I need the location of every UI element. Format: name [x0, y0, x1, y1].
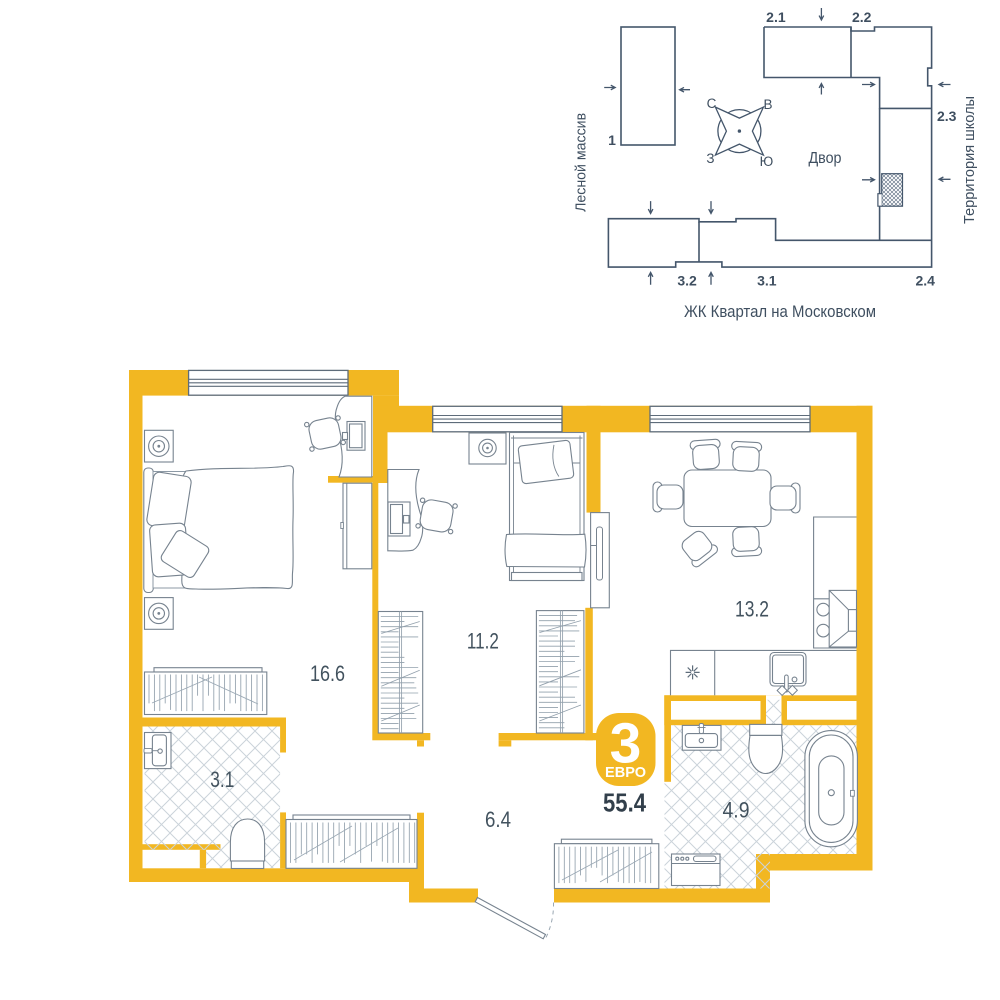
svg-text:1: 1	[608, 132, 616, 148]
svg-text:11.2: 11.2	[467, 628, 499, 653]
svg-text:4.9: 4.9	[723, 798, 750, 823]
svg-text:ЕВРО: ЕВРО	[605, 764, 646, 781]
svg-text:Двор: Двор	[809, 150, 842, 167]
svg-text:ЖК Квартал на Московском: ЖК Квартал на Московском	[684, 303, 876, 321]
svg-text:З: З	[706, 151, 714, 166]
svg-text:С: С	[707, 96, 717, 111]
svg-text:В: В	[763, 97, 772, 112]
svg-text:3.1: 3.1	[210, 767, 234, 792]
svg-text:13.2: 13.2	[735, 596, 769, 621]
svg-text:2.2: 2.2	[852, 9, 872, 25]
svg-text:3.1: 3.1	[757, 273, 777, 289]
svg-text:55.4: 55.4	[603, 788, 646, 818]
svg-text:2.4: 2.4	[915, 273, 935, 289]
svg-text:3.2: 3.2	[677, 273, 697, 289]
svg-text:Территория школы: Территория школы	[961, 96, 978, 224]
svg-text:Ю: Ю	[760, 154, 774, 169]
svg-text:16.6: 16.6	[310, 661, 345, 686]
svg-text:2.3: 2.3	[937, 108, 957, 124]
svg-text:Лесной массив: Лесной массив	[573, 113, 590, 212]
svg-text:2.1: 2.1	[766, 9, 786, 25]
svg-text:6.4: 6.4	[485, 807, 511, 832]
